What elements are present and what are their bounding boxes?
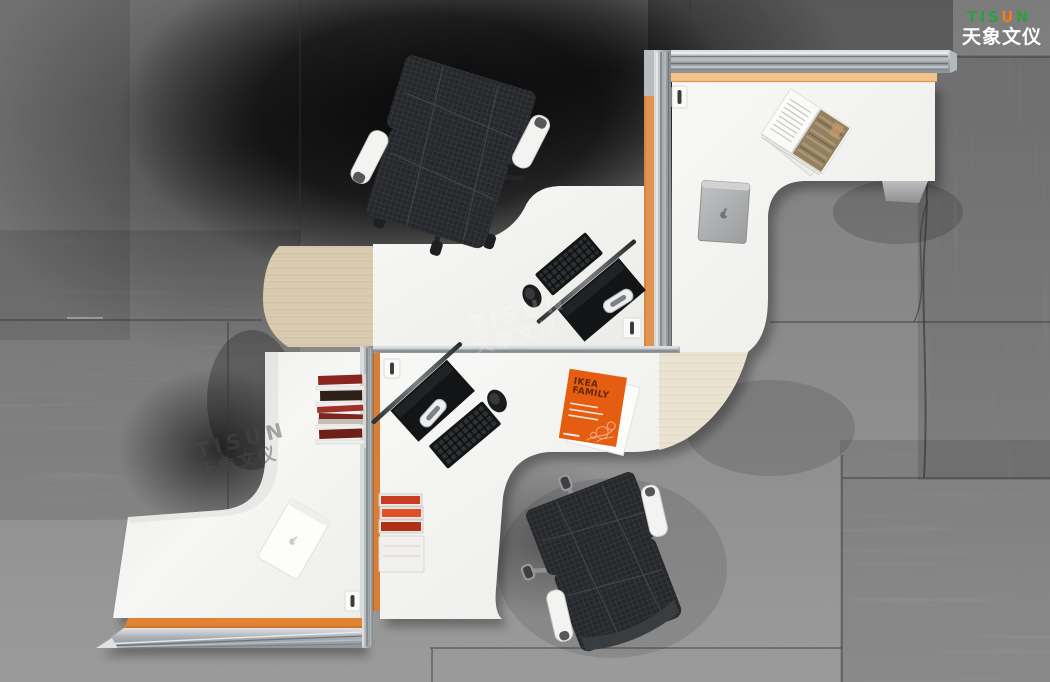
scene: IKEA FAMILY — [0, 0, 1050, 682]
brand-name: TISUN — [967, 8, 1031, 26]
drawer-unit — [379, 536, 424, 572]
brand-logo: TISUN 天象文仪 — [962, 8, 1042, 48]
brand-subtitle: 天象文仪 — [962, 25, 1042, 48]
grommet — [345, 591, 360, 611]
office-top-view-photo: IKEA FAMILY — [0, 0, 1050, 682]
laptop-gray — [698, 180, 750, 243]
letter-trays — [379, 494, 424, 572]
screen-rail-vertical-right — [644, 50, 671, 352]
grommet — [384, 359, 400, 378]
screen-rail-bottom — [96, 618, 362, 648]
grommet — [672, 86, 687, 108]
grommet — [623, 318, 641, 338]
orange-accent-top — [666, 73, 937, 82]
orange-accent-vertical-left — [373, 353, 380, 611]
desk-middle-upper-wood — [263, 246, 373, 347]
screen-rail-top — [648, 50, 957, 82]
